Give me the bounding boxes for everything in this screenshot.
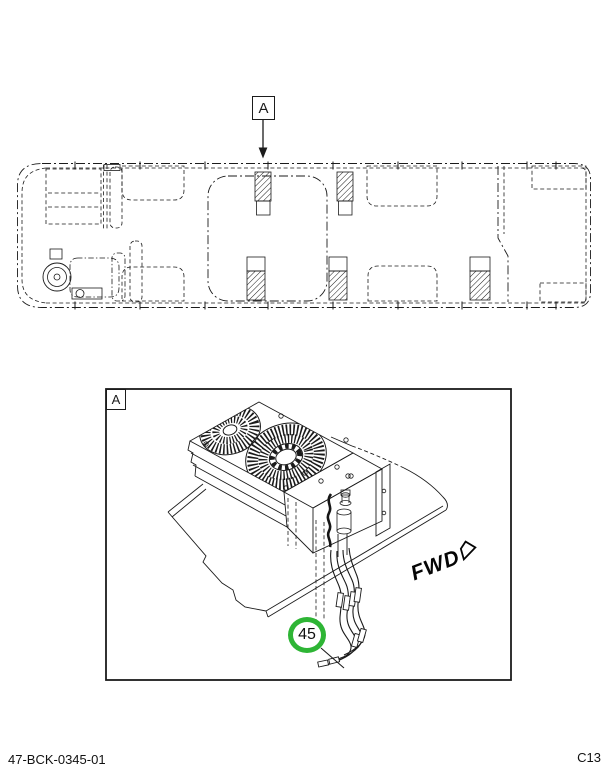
detail-label-letter: A (112, 393, 121, 406)
front-interior-fittings (46, 165, 184, 303)
bus-roof-plan-drawing (0, 88, 610, 320)
roof-unit-location-marks (247, 172, 490, 300)
wire-connectors (318, 588, 367, 667)
footer-page-code: C13 (577, 750, 601, 765)
part-callout-45[interactable]: 45 (288, 617, 326, 653)
unit-location-hatch-a (255, 172, 271, 201)
unit-location-hatch (470, 271, 490, 300)
hidden-support-lines (288, 498, 324, 622)
wrapped-hose (328, 494, 331, 547)
condenser-fan-icon (193, 398, 267, 463)
driver-station (43, 249, 125, 301)
refrigerant-fittings (328, 490, 351, 557)
detail-view-label: A (106, 389, 126, 410)
unit-location-hatch (247, 271, 265, 300)
part-number: 45 (298, 626, 316, 644)
unit-location-hatch (337, 172, 353, 201)
parts-catalog-page: { "figure": { "overview_callout": "A", "… (0, 0, 610, 777)
compressor-housing (284, 453, 390, 553)
bus-body-outline (18, 162, 591, 310)
condenser-fans (193, 398, 335, 501)
unit-location-hatch (329, 271, 347, 300)
footer-doc-number: 47-BCK-0345-01 (8, 752, 106, 767)
callout-down-arrow-icon (259, 119, 268, 159)
end-mounting-plate (376, 464, 390, 536)
